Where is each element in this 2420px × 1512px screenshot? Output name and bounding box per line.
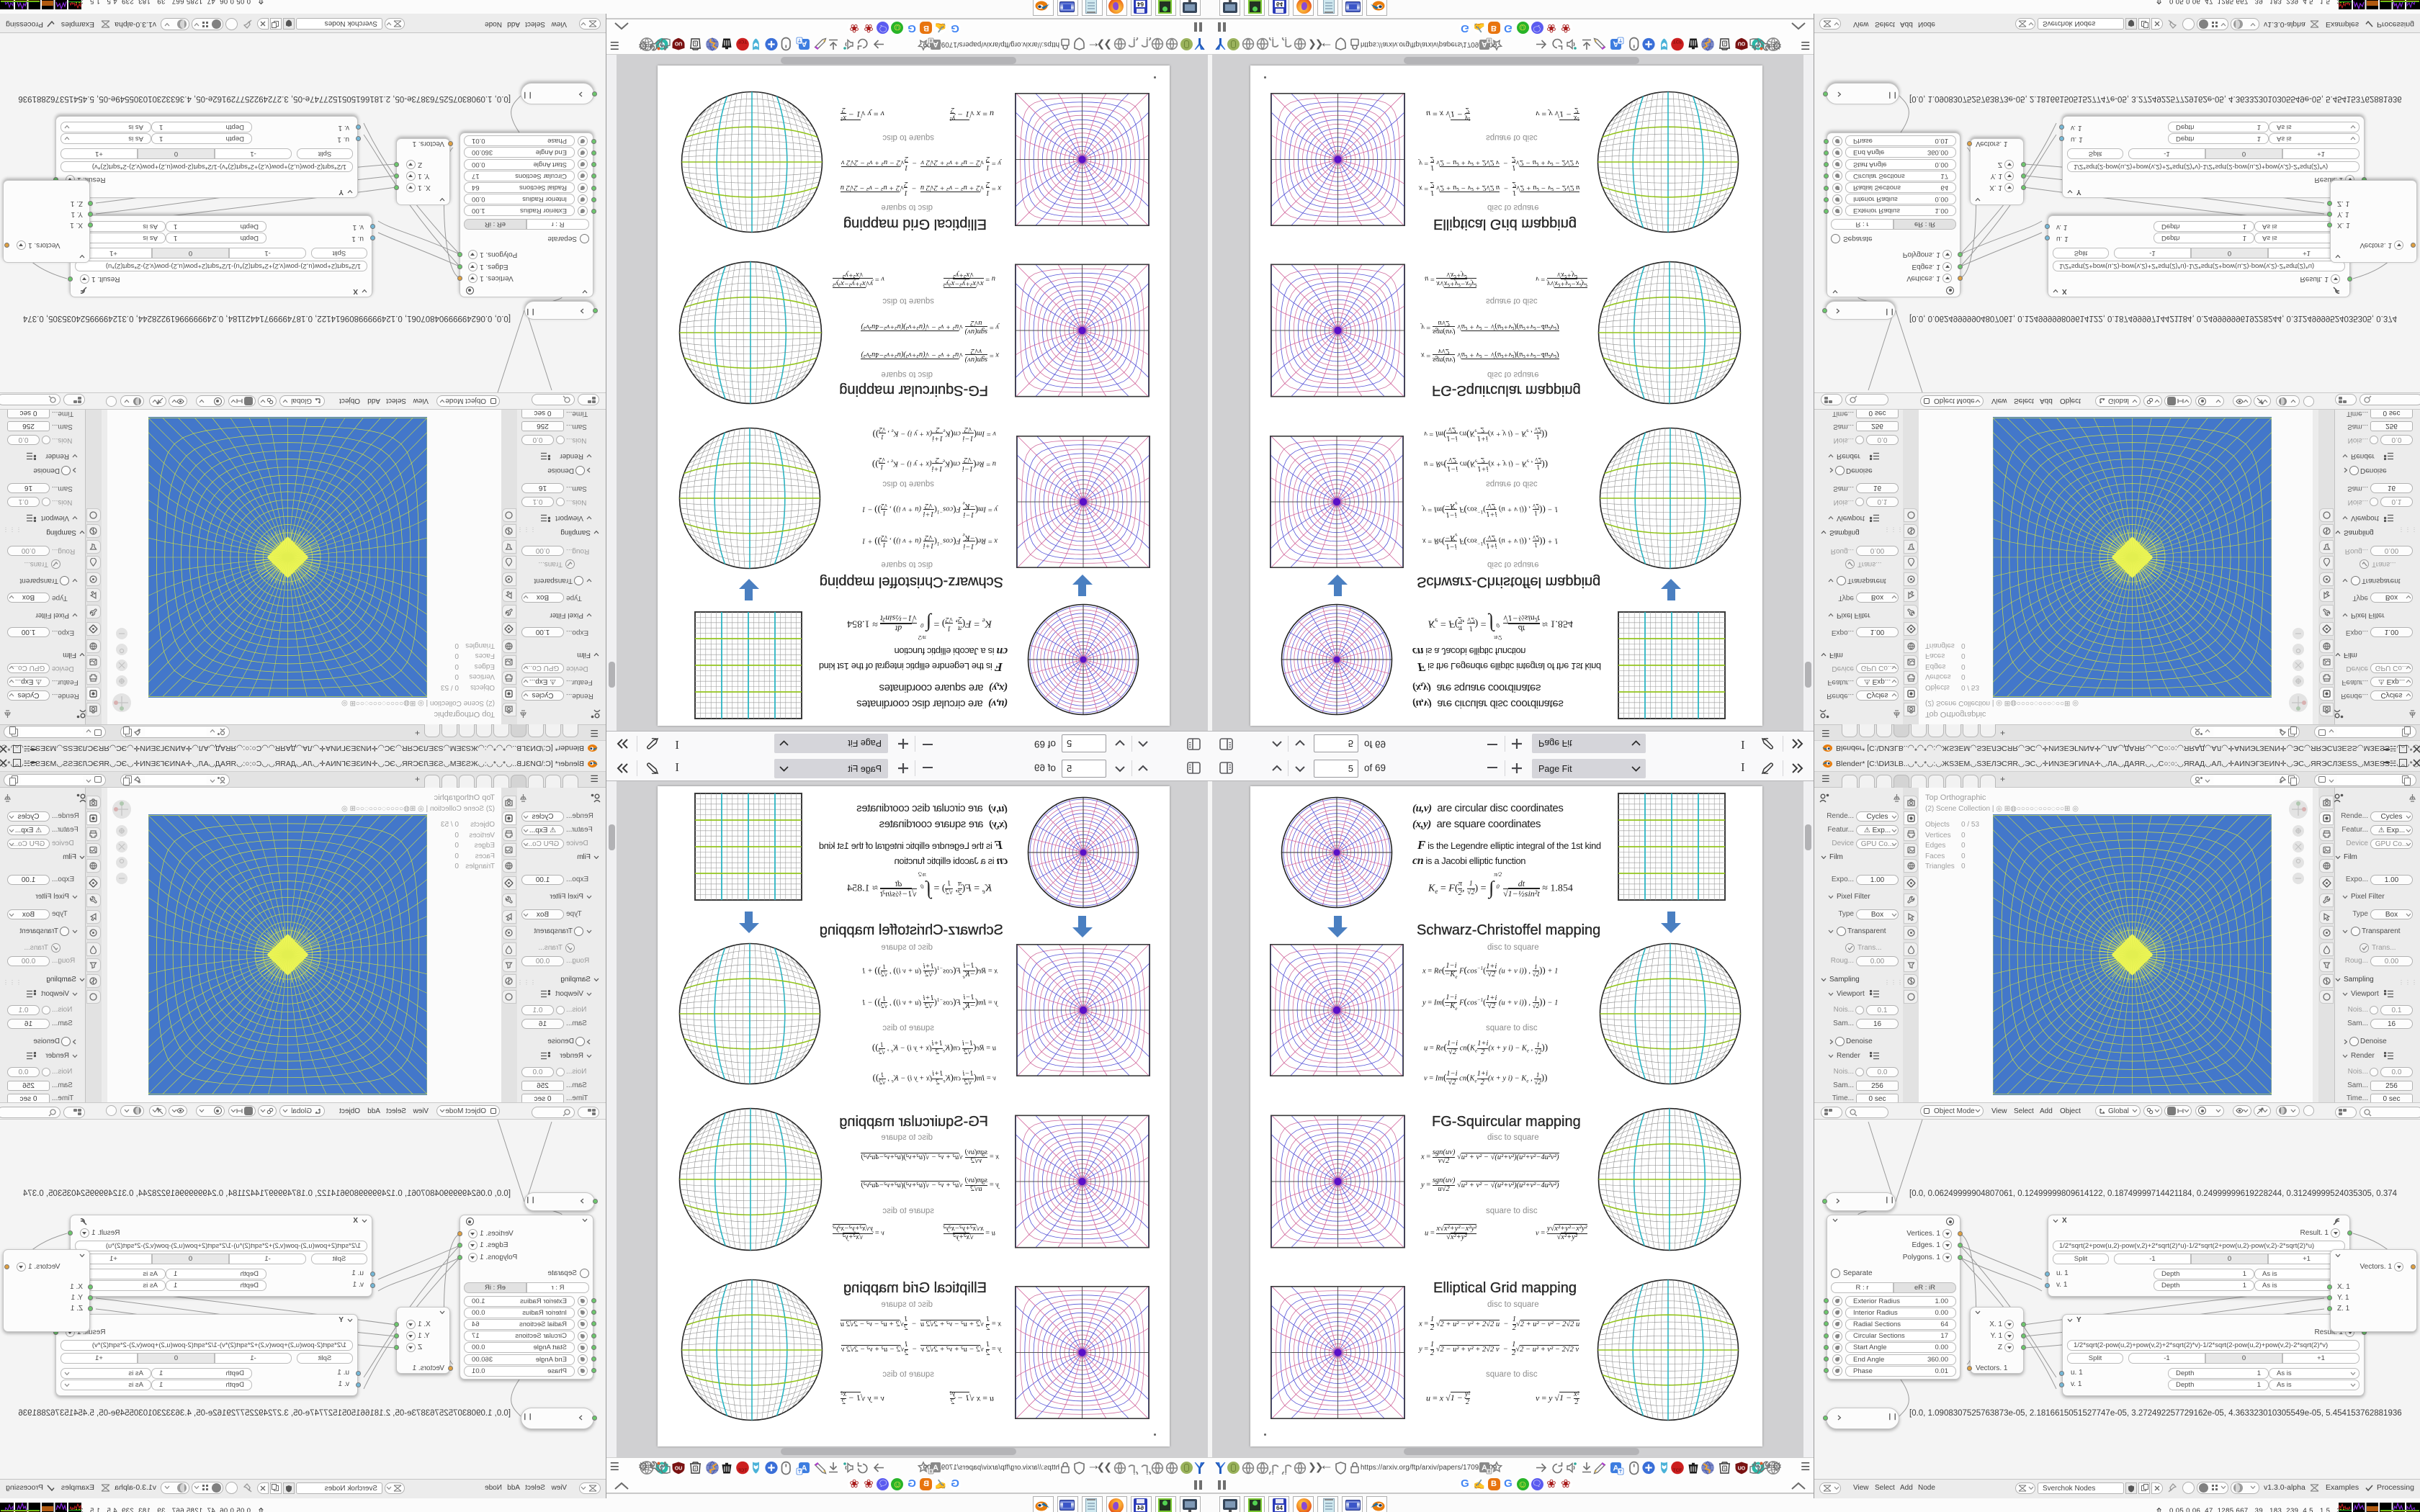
svg-text:5: 5 — [694, 40, 696, 45]
svg-text:TCF: TCF — [738, 1468, 748, 1473]
svg-text:TCF: TCF — [738, 39, 748, 44]
svg-text:5: 5 — [694, 1467, 696, 1472]
svg-text:UO: UO — [1738, 1467, 1746, 1472]
svg-text:TCF: TCF — [1673, 1468, 1682, 1473]
svg-text:UO: UO — [674, 41, 682, 46]
svg-text:UO: UO — [1738, 41, 1746, 46]
svg-text:UO: UO — [674, 1467, 682, 1472]
svg-text:TCF: TCF — [1673, 39, 1682, 44]
